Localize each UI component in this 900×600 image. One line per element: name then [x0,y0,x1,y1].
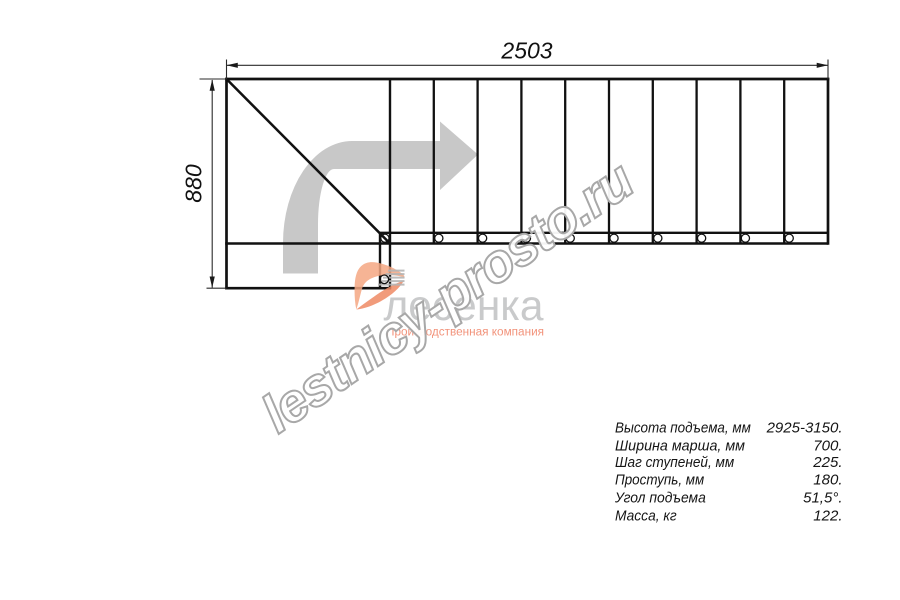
svg-text:Шаг ступеней, мм: Шаг ступеней, мм [615,454,734,471]
svg-text:Масса, кг: Масса, кг [615,507,677,524]
svg-text:2503: 2503 [500,38,552,64]
svg-text:Высота подъема, мм: Высота подъема, мм [615,420,751,437]
svg-text:Проступь, мм: Проступь, мм [615,472,704,489]
svg-text:Ширина марша, мм: Ширина марша, мм [615,438,745,455]
svg-text:225.: 225. [812,454,842,471]
svg-text:Угол подъема: Угол подъема [614,490,706,507]
svg-text:180.: 180. [813,472,842,489]
svg-text:700.: 700. [813,438,842,455]
svg-text:51,5°.: 51,5°. [803,490,842,507]
svg-text:122.: 122. [813,507,842,524]
svg-text:2925-3150.: 2925-3150. [766,420,843,437]
svg-text:880: 880 [180,164,206,203]
